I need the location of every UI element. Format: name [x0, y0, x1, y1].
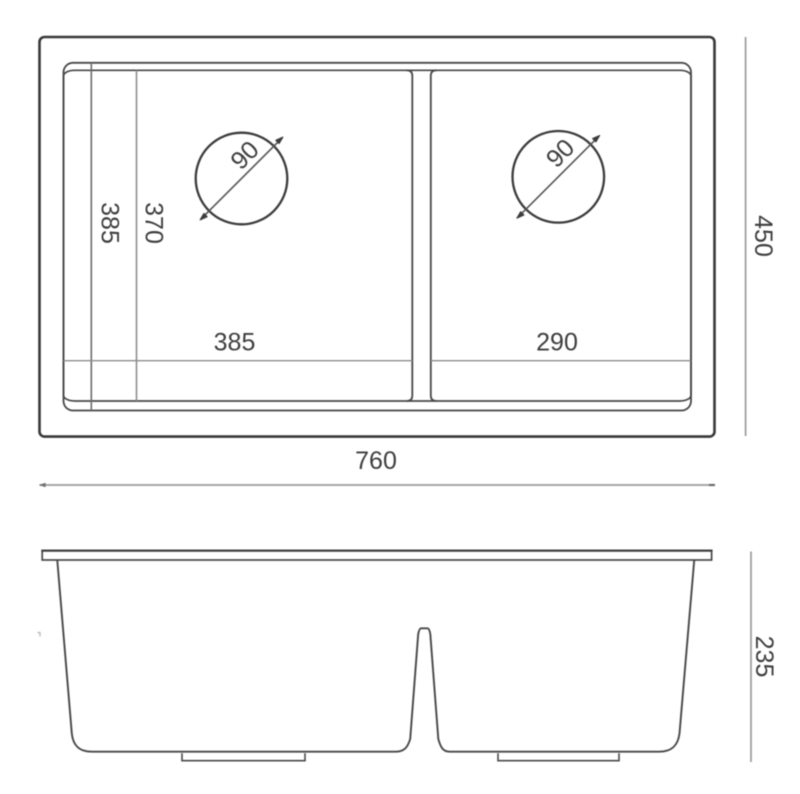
- svg-text:290: 290: [536, 329, 578, 357]
- svg-text:385: 385: [96, 202, 124, 244]
- svg-text:450: 450: [749, 215, 777, 257]
- svg-text:385: 385: [214, 329, 256, 357]
- svg-text:90: 90: [541, 134, 580, 173]
- svg-text:235: 235: [750, 636, 778, 678]
- svg-text:90: 90: [225, 136, 264, 175]
- svg-text:760: 760: [355, 447, 397, 475]
- svg-text:370: 370: [140, 202, 168, 244]
